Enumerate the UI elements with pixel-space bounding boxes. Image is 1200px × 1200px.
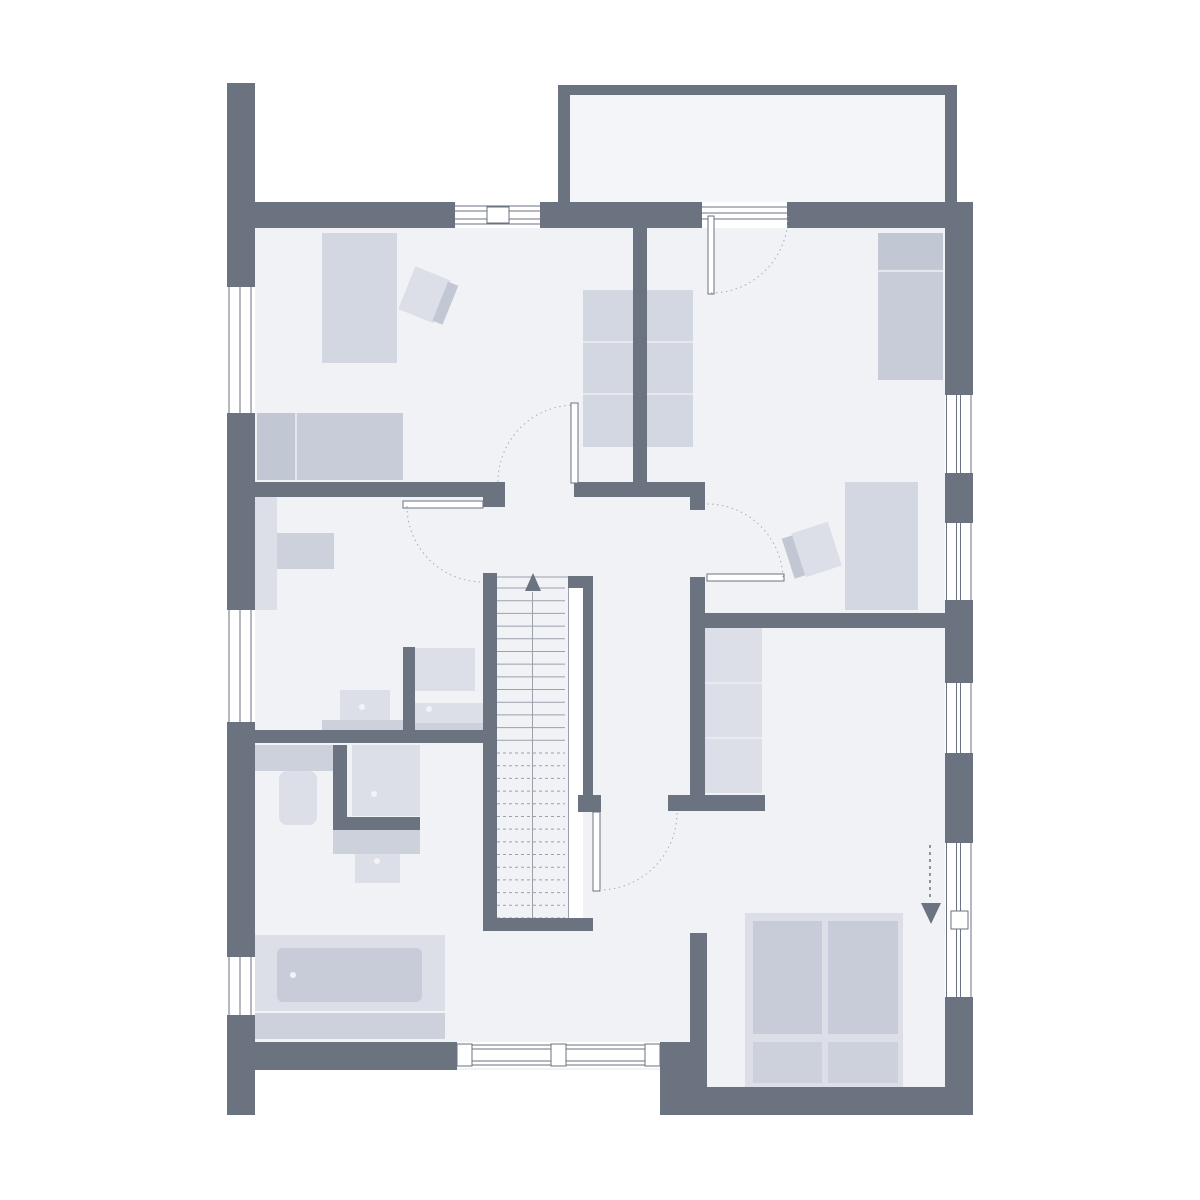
- window-right-3: [945, 683, 973, 753]
- wall-shower-south: [333, 817, 420, 830]
- wall-exterior-right-1: [945, 203, 973, 395]
- floor-balcony: [570, 95, 945, 203]
- wall-exterior-right-2: [945, 473, 973, 523]
- wall-exterior-right-4: [945, 753, 973, 843]
- wall-dressing-south: [668, 795, 765, 811]
- wall-balcony-top: [558, 85, 950, 95]
- wall-exterior-west-mid: [227, 413, 255, 610]
- wall-exterior-right-3: [945, 600, 973, 683]
- drain-shower-dot: [371, 791, 377, 797]
- door-bedroom2-leaf: [707, 574, 784, 581]
- window-right-terrace-door-post: [951, 911, 968, 929]
- wall-south-bedrooms-east: [574, 482, 705, 497]
- window-bottom-post: [551, 1044, 566, 1066]
- faucet-vanity-dot: [374, 858, 380, 864]
- wall-corridor-east: [690, 577, 705, 810]
- window-top-terrace-threshold: [702, 202, 787, 228]
- bed-bedroom2-pillow: [878, 233, 943, 269]
- window-top-post: [487, 207, 509, 223]
- wall-corridor-east-upper: [690, 497, 705, 510]
- staircase-void: [569, 576, 583, 918]
- floor-plan-canvas: [0, 0, 1200, 1200]
- wall-stair-ne-corner: [568, 576, 593, 588]
- wardrobe-hall: [647, 290, 693, 447]
- pillow-left: [753, 1042, 822, 1083]
- wall-stair-south: [483, 918, 593, 931]
- wall-exterior-top-left: [250, 202, 455, 228]
- door-bedroom1-leaf: [571, 403, 578, 483]
- mattress-right: [828, 921, 898, 1034]
- wall-stair-west: [483, 573, 497, 931]
- washbasin-1: [340, 690, 390, 721]
- wall-door-stub: [483, 497, 505, 507]
- wall-balcony-right: [945, 85, 957, 205]
- shower-pan: [352, 745, 420, 816]
- desk-room-west: [277, 533, 334, 569]
- faucet-bathtub-dot: [290, 972, 296, 978]
- mattress-left: [753, 921, 822, 1034]
- wardrobe-bedroom1: [583, 290, 633, 447]
- window-bottom-post: [645, 1044, 660, 1066]
- counter-room-west: [253, 497, 277, 610]
- wall-exterior-west-upper: [227, 83, 255, 287]
- window-right-2: [945, 523, 973, 600]
- bathtub-mat: [253, 1013, 445, 1039]
- wall-south-bedrooms-west: [243, 482, 505, 497]
- window-bottom-post: [457, 1044, 472, 1066]
- wall-bath-divider: [240, 730, 483, 743]
- wall-exterior-west-lower: [227, 722, 255, 957]
- wall-divider-bedrooms-top: [633, 222, 647, 497]
- bathtub-inner: [277, 948, 422, 1002]
- wall-balcony-left: [558, 85, 570, 205]
- window-right-1: [945, 395, 973, 473]
- wall-bath-niche: [403, 647, 415, 743]
- cabinet-niche: [415, 648, 475, 691]
- wall-exterior-top-mid: [540, 202, 702, 228]
- toilet-tank: [255, 745, 333, 771]
- door-hall-south-leaf: [593, 812, 600, 891]
- wall-stair-cap: [578, 795, 601, 812]
- shelf-dressing: [705, 628, 762, 793]
- wall-bedroom2-south: [705, 613, 945, 628]
- pillow-right: [828, 1042, 898, 1083]
- wall-exterior-bottom-left: [227, 1042, 457, 1070]
- sofa-bed-bedroom1-pillow: [257, 413, 295, 480]
- wall-exterior-bottom-right: [668, 1087, 973, 1115]
- wall-bedroom-bottom-west: [690, 933, 707, 1115]
- vanity-counter: [333, 830, 420, 854]
- floor-plan-svg: [0, 0, 1200, 1200]
- bed-bedroom1: [322, 233, 397, 363]
- toilet-bowl: [279, 771, 317, 825]
- wall-stair-east: [583, 588, 593, 795]
- washbasin-2: [415, 703, 483, 724]
- door-balcony-leaf: [708, 216, 714, 294]
- door-bath-north-leaf: [403, 501, 483, 508]
- faucet-washbasin-1-dot: [359, 704, 365, 710]
- faucet-washbasin-2-dot: [426, 706, 432, 712]
- dresser-bedroom2: [845, 482, 918, 610]
